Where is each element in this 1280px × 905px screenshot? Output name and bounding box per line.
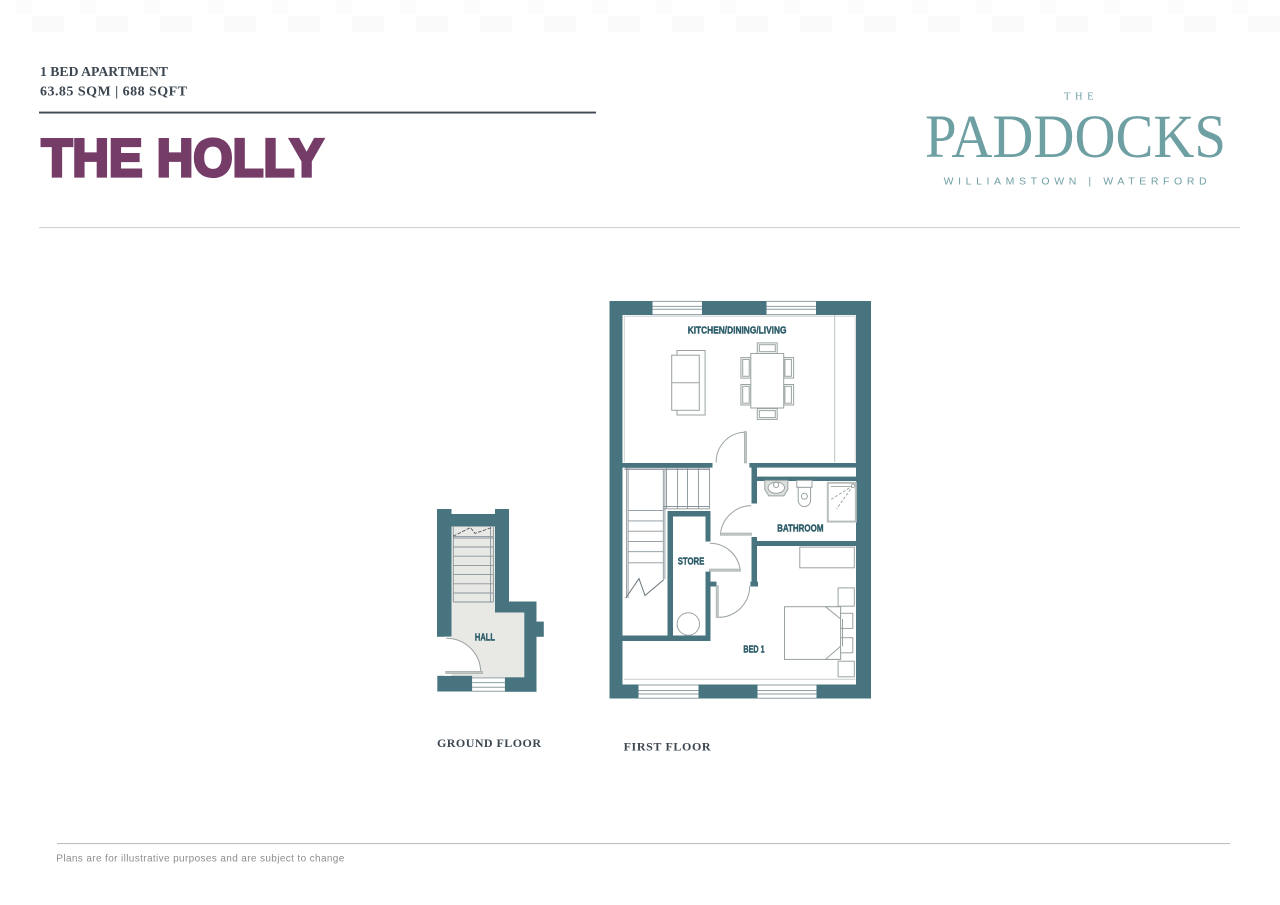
svg-text:THE HOLLY: THE HOLLY [42,129,324,188]
svg-text:63.85 SQM | 688 SQFT: 63.85 SQM | 688 SQFT [40,85,188,100]
svg-text:PADDOCKS: PADDOCKS [925,104,1226,171]
svg-text:FIRST FLOOR: FIRST FLOOR [624,740,711,754]
svg-text:1 BED APARTMENT: 1 BED APARTMENT [40,65,169,80]
svg-text:GROUND FLOOR: GROUND FLOOR [437,736,541,750]
svg-text:THE: THE [1064,92,1094,103]
svg-text:BED 1: BED 1 [743,645,765,656]
svg-text:HALL: HALL [475,632,495,643]
svg-text:BATHROOM: BATHROOM [777,524,823,535]
svg-text:Plans are for illustrative pur: Plans are for illustrative purposes and … [56,854,344,865]
svg-text:STORE: STORE [678,556,705,567]
svg-text:KITCHEN/DINING/LIVING: KITCHEN/DINING/LIVING [688,326,787,337]
